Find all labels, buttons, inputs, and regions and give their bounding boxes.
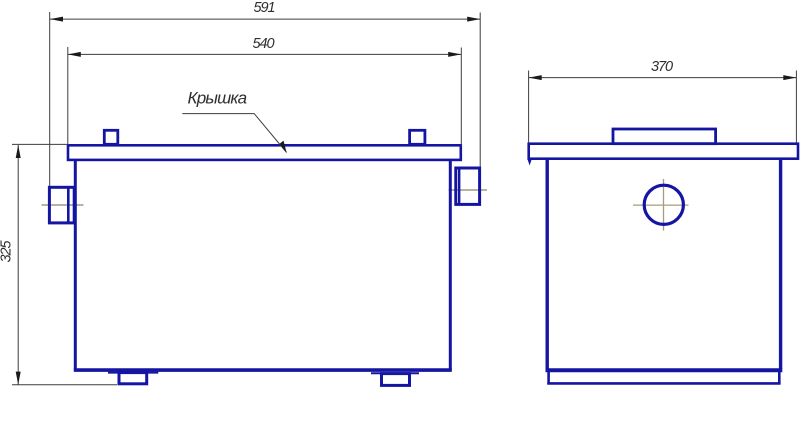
svg-text:370: 370 (651, 59, 673, 75)
svg-text:325: 325 (0, 240, 14, 263)
svg-text:540: 540 (253, 36, 275, 52)
svg-text:591: 591 (254, 0, 275, 16)
svg-text:Крышка: Крышка (188, 89, 247, 108)
